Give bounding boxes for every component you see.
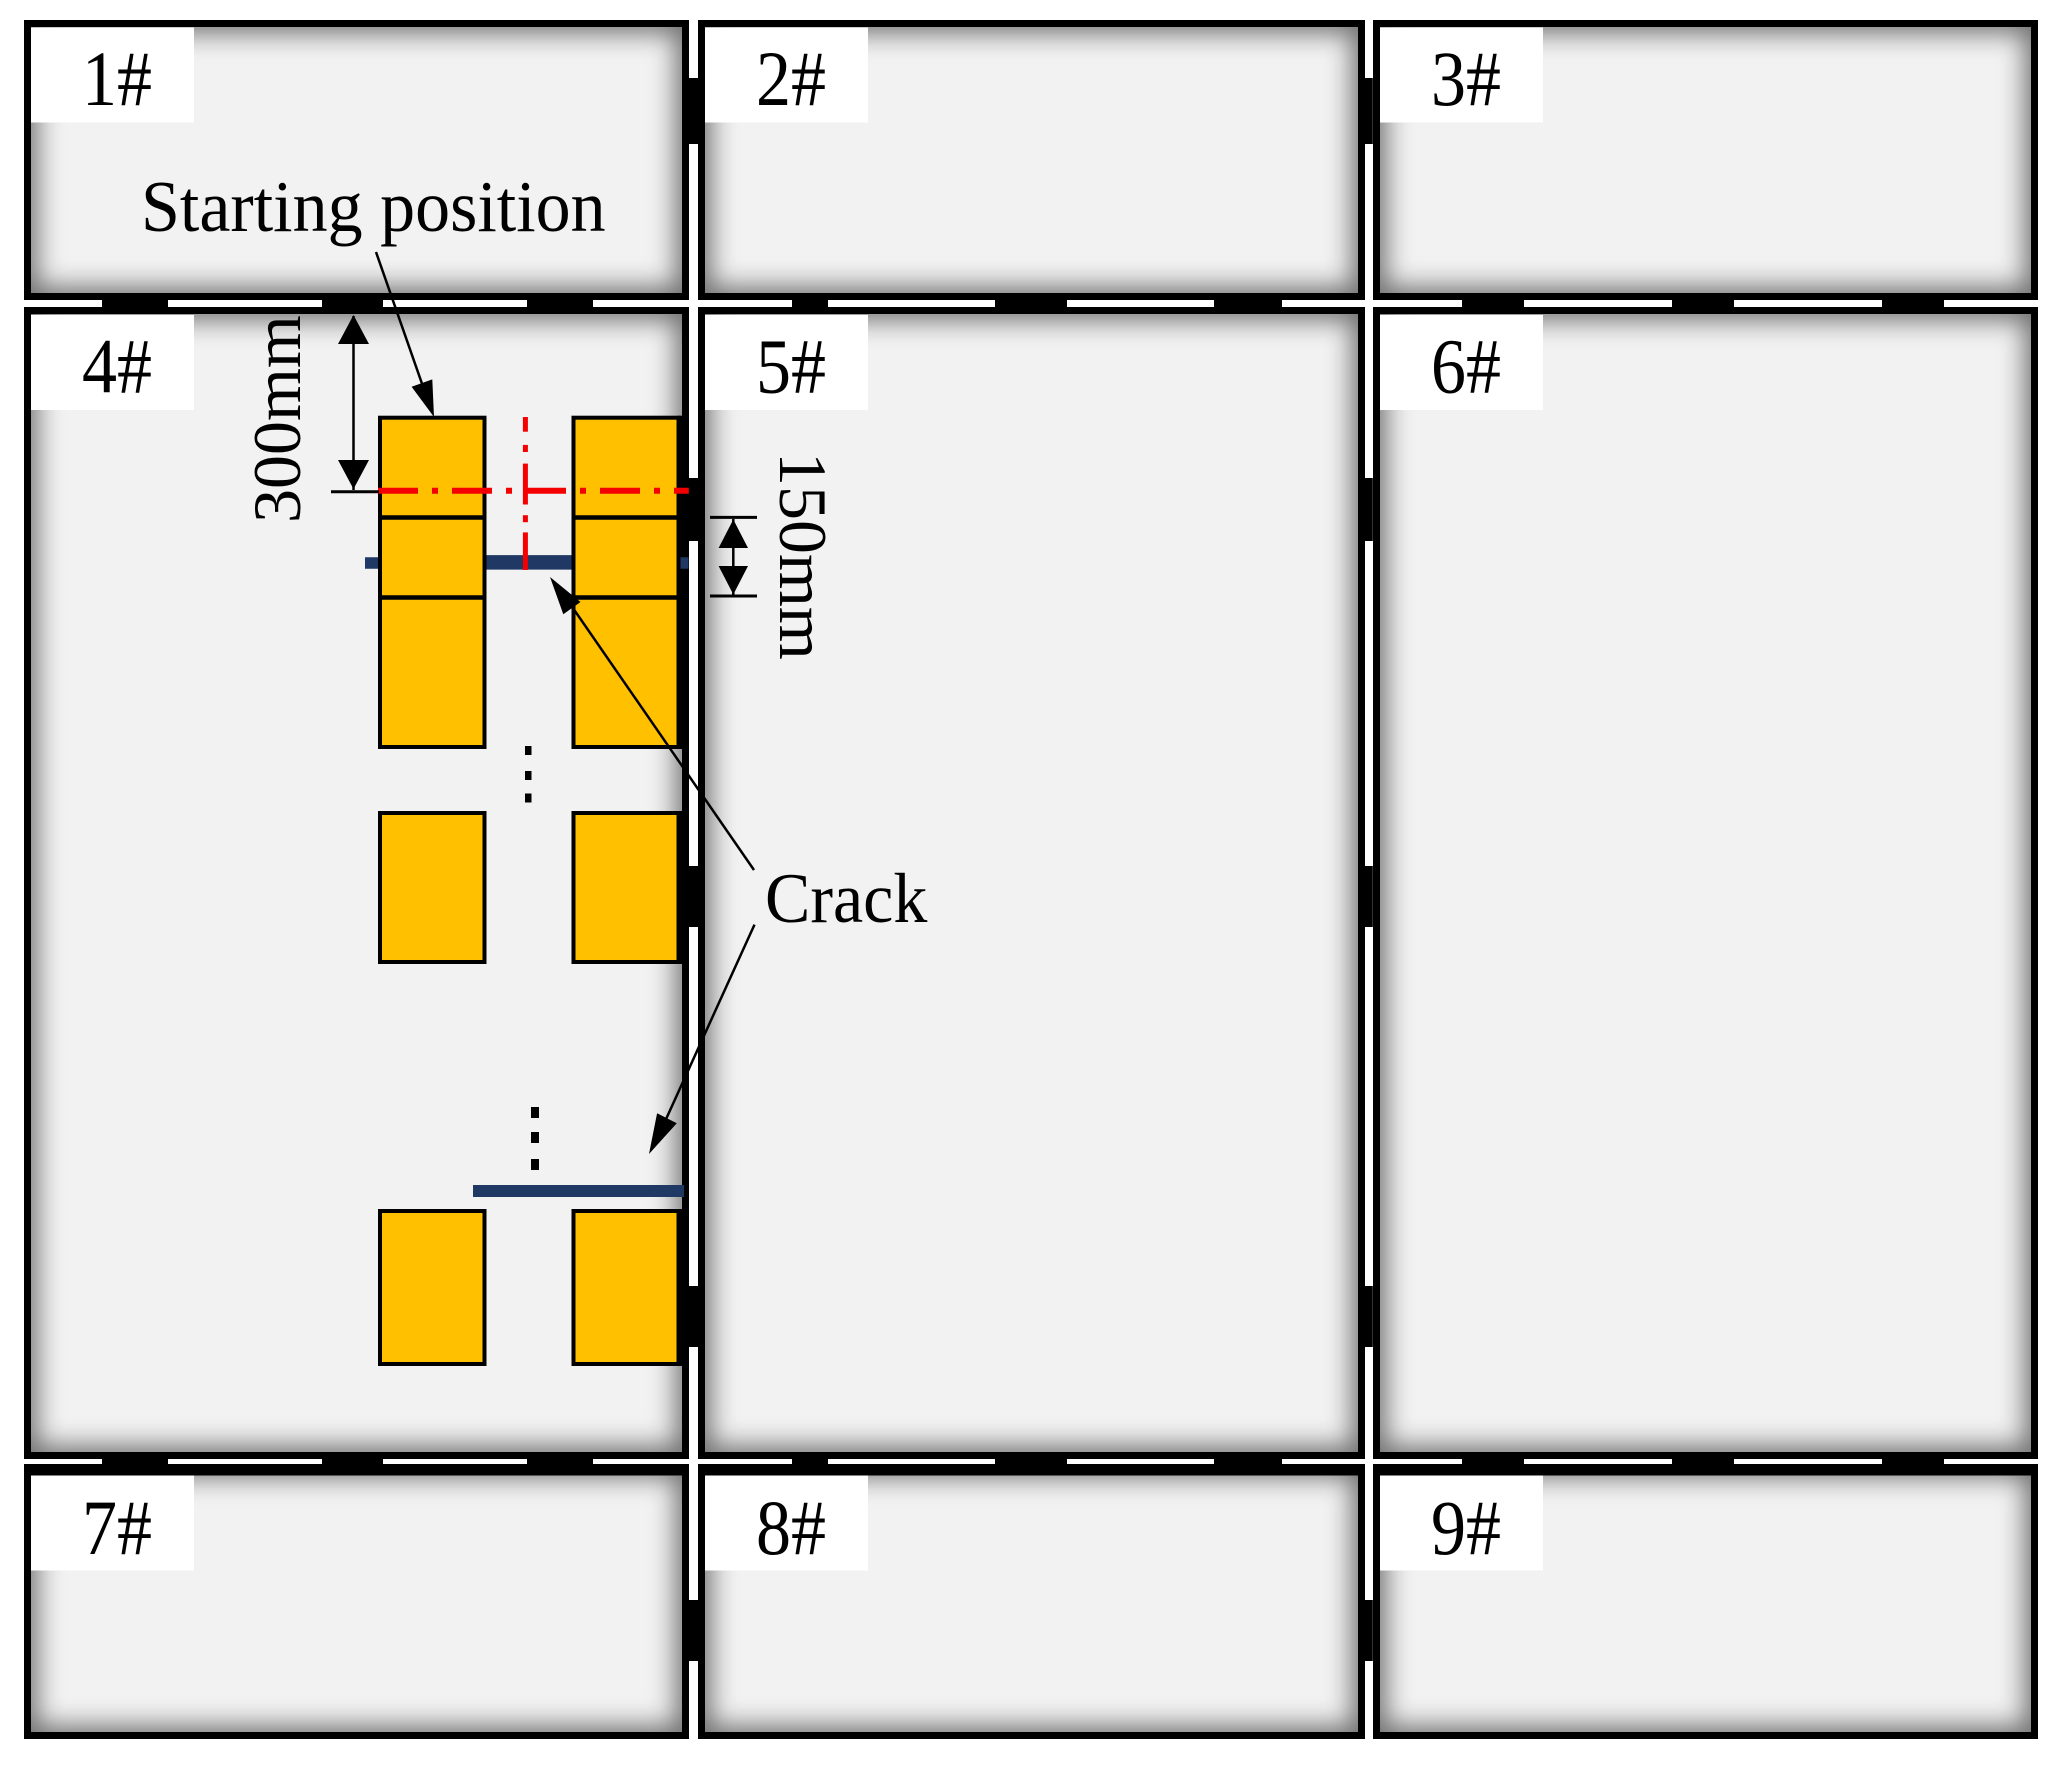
svg-text:2#: 2#	[756, 36, 826, 123]
svg-text:3#: 3#	[1431, 36, 1501, 123]
svg-text:5#: 5#	[756, 324, 826, 411]
svg-text:Starting position: Starting position	[141, 167, 606, 248]
svg-text:1#: 1#	[82, 36, 152, 123]
svg-text:Crack: Crack	[765, 860, 928, 938]
svg-text:300mm: 300mm	[239, 315, 315, 523]
svg-text:8#: 8#	[756, 1485, 826, 1572]
svg-text:6#: 6#	[1431, 324, 1501, 411]
svg-text:4#: 4#	[82, 324, 152, 411]
svg-text:7#: 7#	[82, 1485, 152, 1572]
svg-text:9#: 9#	[1431, 1485, 1501, 1572]
svg-text:150mm: 150mm	[765, 452, 841, 660]
